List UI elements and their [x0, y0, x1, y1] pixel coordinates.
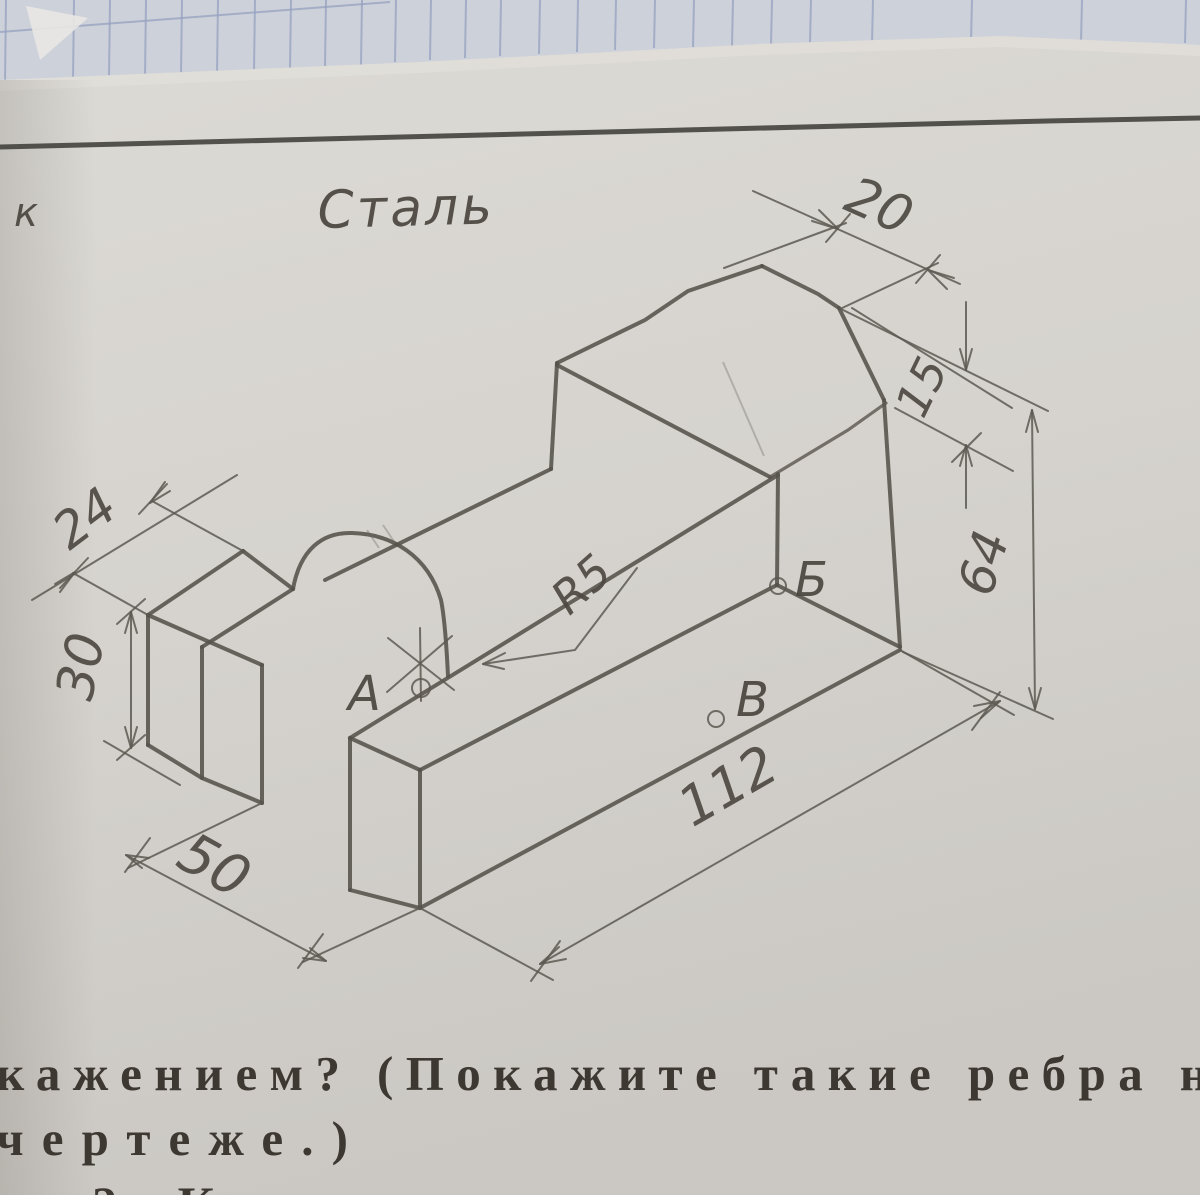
point-b-label: Б [795, 552, 828, 608]
photo-of-textbook-page: к Сталь [0, 0, 1200, 1195]
left-edge-shadow [0, 80, 1200, 1195]
material-label: Сталь [317, 176, 496, 241]
point-v-label: В [736, 672, 769, 728]
caption-line-1: кажением? (Покажите такие ребра н [0, 1046, 1200, 1101]
engineering-drawing-canvas: к Сталь [0, 0, 1200, 1195]
margin-letter: к [14, 190, 38, 236]
point-a-label: А [345, 666, 381, 722]
